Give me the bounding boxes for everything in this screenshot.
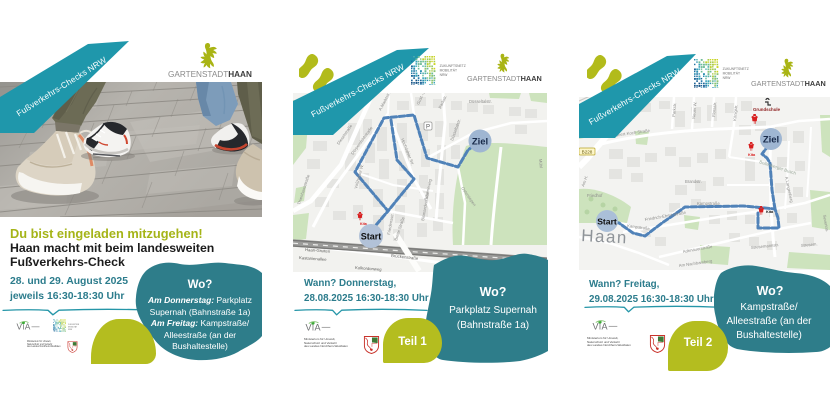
- svg-text:Start: Start: [361, 232, 382, 242]
- svg-text:Brandstr.: Brandstr.: [685, 179, 702, 184]
- svg-text:Kampstraße: Kampstraße: [697, 201, 720, 206]
- svg-text:Start: Start: [597, 217, 617, 227]
- svg-text:Kita: Kita: [766, 210, 774, 214]
- svg-text:Kita: Kita: [748, 153, 756, 157]
- svg-text:Mühl: Mühl: [538, 159, 544, 169]
- svg-text:B228: B228: [582, 150, 593, 155]
- svg-text:Friedhof: Friedhof: [587, 193, 603, 198]
